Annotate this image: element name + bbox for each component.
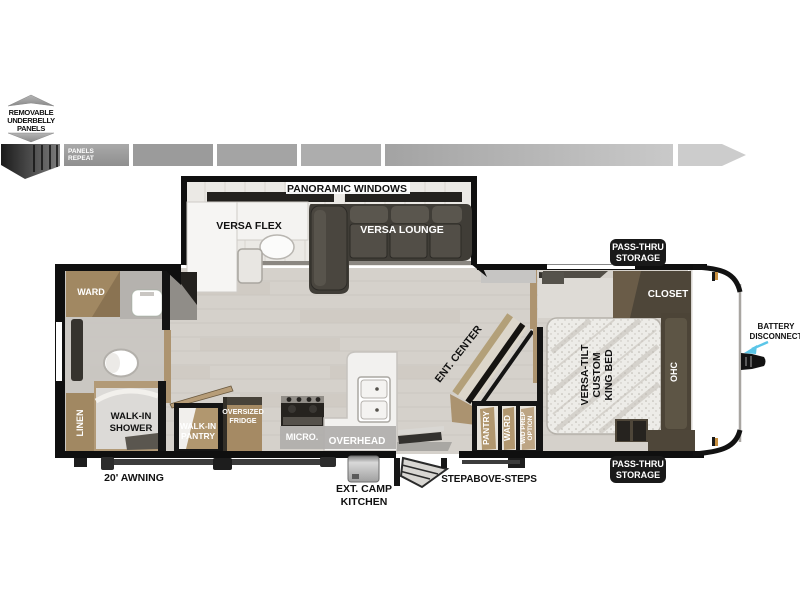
svg-text:SHOWER: SHOWER	[110, 423, 153, 434]
svg-text:PANORAMIC WINDOWS: PANORAMIC WINDOWS	[287, 183, 407, 195]
svg-text:PANELS: PANELS	[68, 148, 95, 155]
svg-text:WARD: WARD	[502, 415, 512, 441]
svg-text:W/D PREP: W/D PREP	[520, 411, 527, 444]
svg-text:PANELS: PANELS	[17, 124, 45, 133]
svg-text:CLOSET: CLOSET	[648, 289, 689, 300]
svg-text:STORAGE: STORAGE	[616, 253, 660, 263]
svg-text:VERSA FLEX: VERSA FLEX	[216, 220, 282, 232]
svg-text:FRIDGE: FRIDGE	[229, 416, 256, 425]
svg-text:OPTION: OPTION	[527, 415, 534, 440]
svg-text:REPEAT: REPEAT	[68, 155, 94, 162]
svg-text:VERSA-TILT: VERSA-TILT	[579, 344, 591, 406]
svg-text:WARD: WARD	[77, 287, 105, 297]
svg-text:STORAGE: STORAGE	[616, 470, 660, 480]
svg-text:STEPABOVE-STEPS: STEPABOVE-STEPS	[441, 474, 537, 485]
svg-text:PANTRY: PANTRY	[181, 431, 215, 441]
svg-text:OVERSIZED: OVERSIZED	[222, 407, 264, 416]
svg-text:KITCHEN: KITCHEN	[341, 496, 388, 508]
svg-text:PASS-THRU: PASS-THRU	[612, 459, 664, 469]
svg-text:OHC: OHC	[669, 362, 679, 383]
svg-text:PASS-THRU: PASS-THRU	[612, 242, 664, 252]
svg-text:KING BED: KING BED	[603, 349, 615, 401]
svg-text:WALK-IN: WALK-IN	[111, 411, 152, 422]
svg-text:MICRO.: MICRO.	[286, 432, 319, 442]
svg-text:EXT. CAMP: EXT. CAMP	[336, 483, 392, 495]
svg-text:BATTERY: BATTERY	[758, 322, 796, 331]
svg-text:DISCONNECT: DISCONNECT	[750, 332, 800, 341]
svg-text:WALK-IN: WALK-IN	[180, 421, 216, 431]
svg-text:PANTRY: PANTRY	[481, 411, 491, 445]
svg-text:LINEN: LINEN	[75, 410, 85, 437]
svg-text:CUSTOM: CUSTOM	[591, 352, 603, 398]
svg-text:20' AWNING: 20' AWNING	[104, 472, 164, 484]
svg-text:VERSA LOUNGE: VERSA LOUNGE	[360, 224, 444, 236]
svg-text:OVERHEAD: OVERHEAD	[329, 436, 386, 447]
